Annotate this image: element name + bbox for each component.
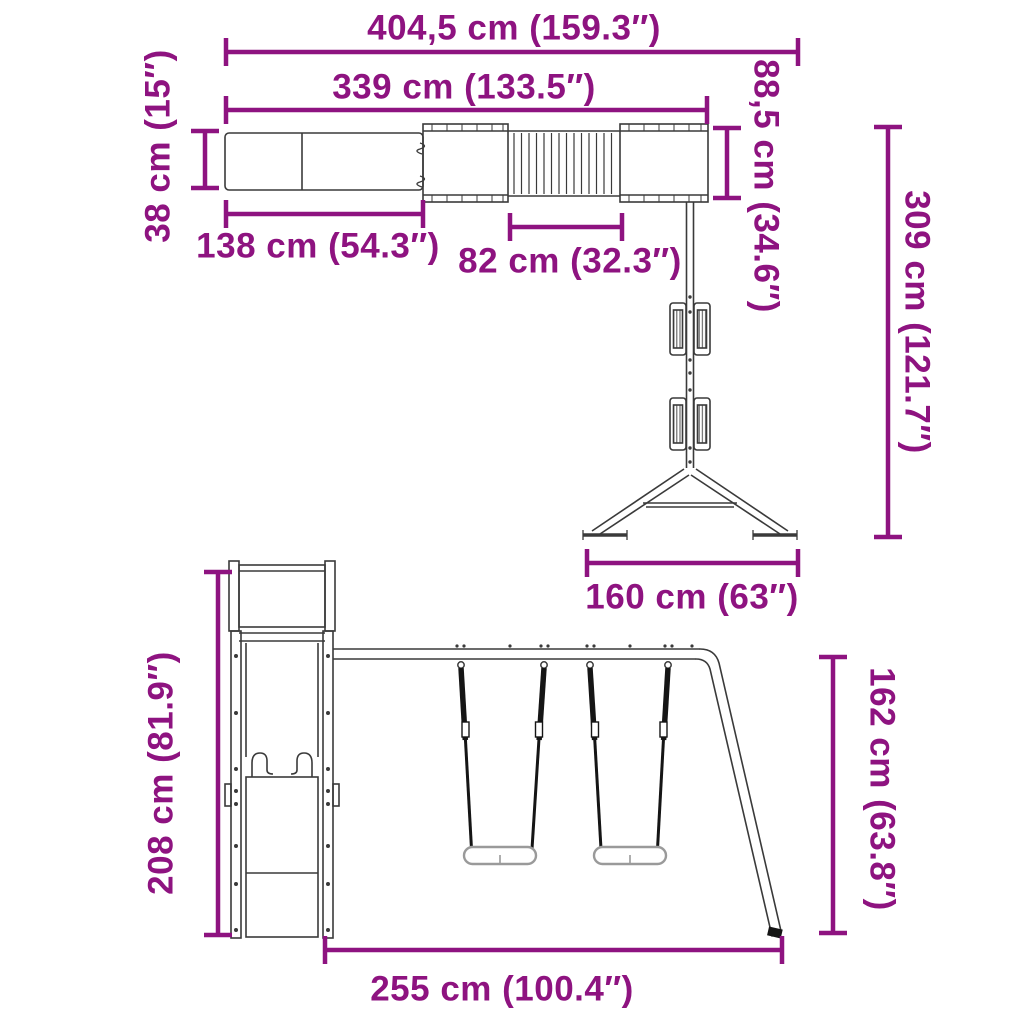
- dim-bridge-length: [510, 213, 622, 241]
- slide-top-view: [225, 133, 425, 190]
- bridge-top-view: [508, 131, 620, 196]
- dim-swing-section-length: [325, 936, 782, 964]
- dim-label-swing-frame-depth: 309 cm (121.7″): [900, 190, 935, 454]
- left-platform-top-view: [423, 124, 508, 202]
- dim-label-bridge-length: 82 cm (32.3″): [458, 244, 682, 279]
- dim-slide-width: [191, 131, 219, 188]
- dimension-lines: [191, 38, 902, 964]
- dim-platform-depth: [713, 128, 741, 198]
- dim-label-swing-section-length: 255 cm (100.4″): [370, 972, 634, 1007]
- tower-front-view: [225, 561, 339, 938]
- dim-swing-beam-height: [819, 657, 847, 933]
- dim-label-upper-frame-width: 339 cm (133.5″): [332, 70, 596, 105]
- swing-beam-top-view: [687, 202, 694, 468]
- dim-label-slide-length: 138 cm (54.3″): [196, 229, 440, 264]
- dim-label-tower-height: 208 cm (81.9″): [144, 651, 179, 895]
- a-frame-top-view: [583, 469, 797, 540]
- dim-slide-length: [226, 200, 423, 228]
- dim-tower-height: [204, 572, 232, 935]
- dim-label-platform-depth: 88,5 cm (34.6″): [749, 59, 784, 313]
- dim-label-swing-base-width: 160 cm (63″): [585, 580, 798, 615]
- dim-label-overall-width: 404,5 cm (159.3″): [367, 11, 661, 46]
- dim-label-slide-width: 38 cm (15″): [141, 49, 176, 242]
- tower-bolts: [234, 654, 330, 932]
- swing-frame-front-view: [333, 644, 783, 938]
- dimension-diagram: 404,5 cm (159.3″) 339 cm (133.5″) 38 cm …: [0, 0, 1024, 1024]
- swing-1: [461, 668, 544, 864]
- swing-hooks: [458, 662, 671, 668]
- dim-swing-base-width: [587, 549, 798, 577]
- right-platform-top-view: [620, 124, 708, 202]
- swing-hangers-top-view: [670, 303, 710, 450]
- beam-bolts: [455, 644, 693, 647]
- swing-2: [590, 668, 668, 864]
- dim-label-swing-beam-height: 162 cm (63.8″): [865, 667, 900, 911]
- top-view-drawing: [225, 124, 797, 540]
- front-view-drawing: [225, 561, 783, 938]
